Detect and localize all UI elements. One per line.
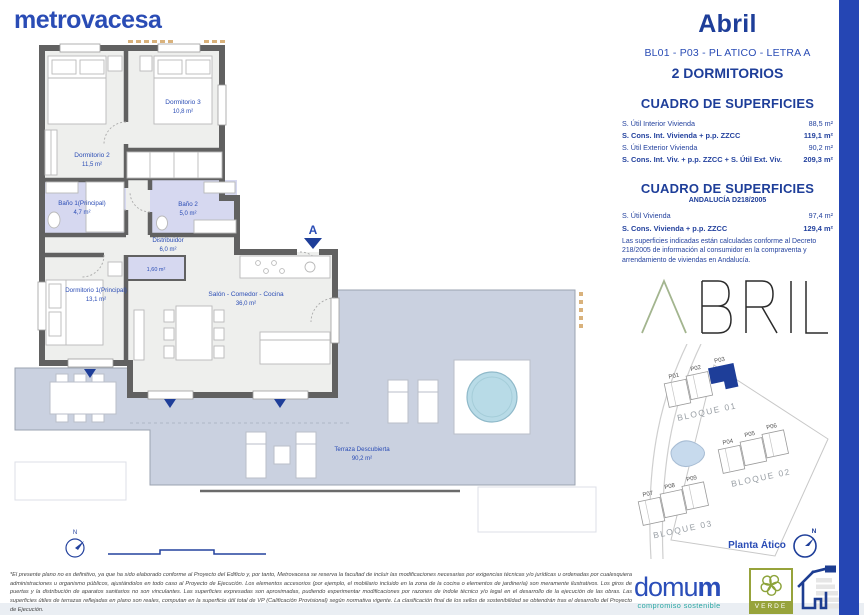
plunge-pool [467, 372, 517, 422]
table-row: S. Útil Interior Vivienda88,5 m² [620, 117, 835, 129]
surface-table-title: CUADRO DE SUPERFICIES [620, 96, 835, 111]
table-row: S. Cons. Int. Viv. + p.p. ZZCC + S. Útil… [620, 154, 835, 166]
page-title: Abril [620, 10, 835, 39]
svg-text:13,1 m²: 13,1 m² [86, 297, 106, 303]
abril-wordmark [626, 277, 830, 335]
svg-text:N: N [73, 530, 77, 536]
unit-code: BL01 - P03 - PL ATICO - LETRA A [620, 47, 835, 59]
svg-text:Dormitorio 2: Dormitorio 2 [74, 152, 110, 159]
svg-text:6,0 m²: 6,0 m² [159, 247, 176, 253]
verde-leaf-icon [756, 571, 786, 599]
north-compass: N [66, 530, 84, 557]
highlighted-unit-p03 [708, 363, 738, 392]
svg-text:P09: P09 [686, 475, 698, 483]
surface-table: S. Útil Interior Vivienda88,5 m² S. Cons… [620, 117, 835, 166]
svg-text:P03: P03 [714, 357, 726, 365]
bloque-03: P07 P08 P09 BLOQUE 03 [635, 474, 713, 542]
svg-text:P05: P05 [744, 431, 756, 439]
svg-text:10,8 m²: 10,8 m² [173, 109, 193, 115]
svg-text:Distribuidor: Distribuidor [152, 237, 183, 244]
section-marker-label: A [309, 223, 318, 237]
domum-wordmark: domum [634, 572, 721, 602]
svg-text:Terraza Descubierta: Terraza Descubierta [334, 446, 390, 453]
table-row: S. Útil Vivienda97,4 m² [620, 210, 835, 222]
svg-text:Baño 1(Principal): Baño 1(Principal) [58, 200, 105, 207]
bloque-02: P04 P05 P06 BLOQUE 02 [715, 422, 793, 490]
table-row: S. Útil Exterior Vivienda90,2 m² [620, 141, 835, 153]
side-accent-bar [839, 0, 859, 615]
svg-text:5,0 m²: 5,0 m² [179, 211, 196, 217]
neighbour-outline [478, 487, 596, 532]
svg-text:1,60 m²: 1,60 m² [147, 267, 166, 273]
domum-logo: domum compromiso sostenible [634, 574, 721, 609]
svg-text:11,5 m²: 11,5 m² [82, 162, 102, 168]
decree-note: Las superficies indicadas están calculad… [620, 237, 835, 265]
svg-text:Dormitorio 1(Principal): Dormitorio 1(Principal) [65, 287, 127, 294]
neighbour-outline [15, 462, 126, 500]
svg-text:N: N [812, 528, 817, 535]
verde-label: VERDE [751, 601, 791, 612]
svg-text:P06: P06 [766, 423, 778, 431]
svg-text:4,7 m²: 4,7 m² [73, 210, 90, 216]
andalucia-table-subtitle: ANDALUCÍA D218/2005 [620, 197, 835, 204]
svg-text:Dormitorio 3: Dormitorio 3 [165, 99, 201, 106]
andalucia-table: S. Útil Vivienda97,4 m² S. Cons. Viviend… [620, 210, 835, 234]
svg-text:Salón - Comedor - Cocina: Salón - Comedor - Cocina [208, 291, 284, 298]
svg-text:P01: P01 [668, 373, 680, 381]
bloque-01: P01 P02 P03 BLOQUE 01 [661, 355, 743, 424]
svg-text:P07: P07 [642, 491, 654, 499]
site-pool [671, 441, 705, 467]
table-row: S. Cons. Vivienda + p.p. ZZCC129,4 m² [620, 222, 835, 234]
scale-bar [108, 550, 266, 554]
andalucia-table-title: CUADRO DE SUPERFICIES [620, 181, 835, 196]
typology: 2 DORMITORIOS [620, 65, 835, 81]
legal-disclaimer: *El presente plano no es definitivo, ya … [10, 571, 632, 614]
section-marker-arrow [304, 238, 322, 249]
svg-text:P08: P08 [664, 483, 676, 491]
table-row: S. Cons. Int. Vivienda + p.p. ZZCC119,1 … [620, 129, 835, 141]
svg-text:Baño 2: Baño 2 [178, 201, 198, 208]
info-panel: Abril BL01 - P03 - PL ATICO - LETRA A 2 … [620, 10, 835, 564]
svg-text:P02: P02 [690, 365, 702, 373]
svg-text:36,0 m²: 36,0 m² [236, 301, 256, 307]
svg-text:P04: P04 [722, 439, 734, 447]
svg-text:90,2 m²: 90,2 m² [352, 456, 372, 462]
footer-compass: N [788, 526, 824, 562]
verde-badge: VERDE [749, 568, 793, 614]
floorplan-drawing: A Dormitorio 3 10,8 m² Dormitorio 2 11,5… [8, 30, 608, 565]
domum-tagline: compromiso sostenible [634, 602, 721, 609]
